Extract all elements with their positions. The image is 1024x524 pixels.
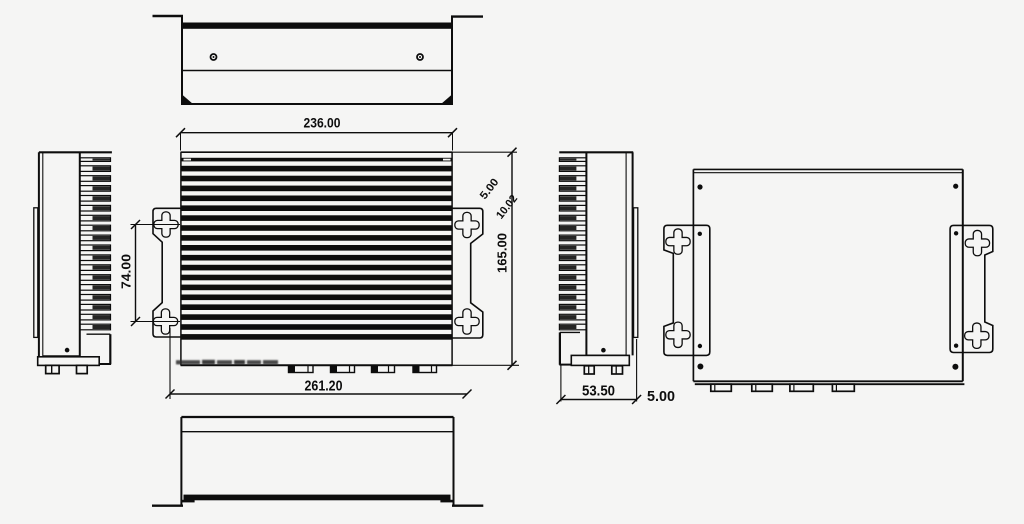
svg-text:5.00: 5.00 bbox=[647, 389, 675, 405]
svg-text:74.00: 74.00 bbox=[119, 254, 134, 289]
svg-text:261.20: 261.20 bbox=[305, 379, 343, 395]
svg-text:53.50: 53.50 bbox=[582, 383, 615, 399]
svg-text:165.00: 165.00 bbox=[495, 233, 510, 273]
svg-text:236.00: 236.00 bbox=[304, 115, 341, 130]
